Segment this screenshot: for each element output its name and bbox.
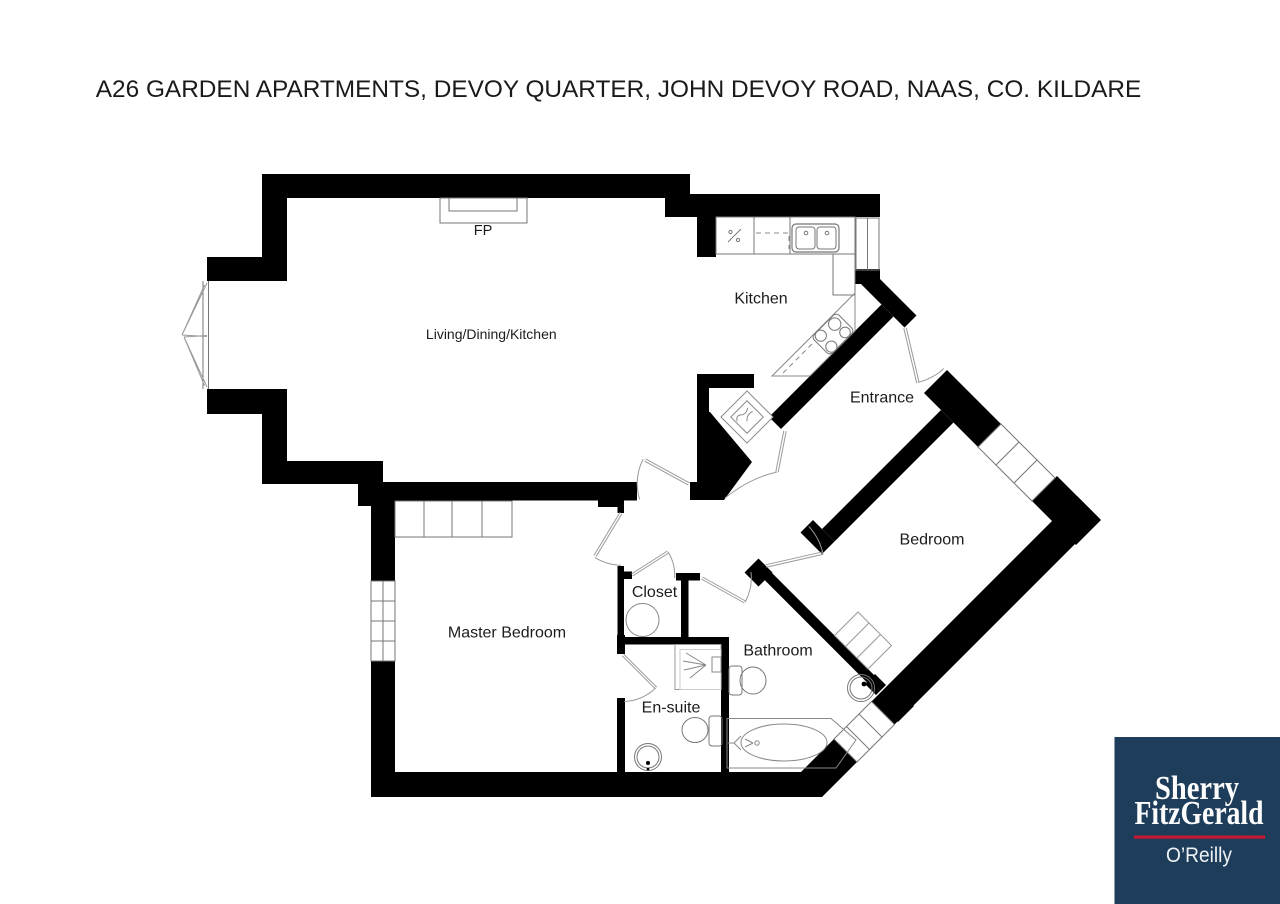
svg-text:Kitchen: Kitchen <box>734 291 787 308</box>
svg-text:Master Bedroom: Master Bedroom <box>448 624 566 641</box>
svg-text:FP: FP <box>474 223 493 239</box>
svg-text:En-suite: En-suite <box>642 700 701 717</box>
svg-text:Living/Dining/Kitchen: Living/Dining/Kitchen <box>426 326 557 342</box>
svg-text:Bedroom: Bedroom <box>900 532 965 549</box>
svg-text:O’Reilly: O’Reilly <box>1166 844 1232 867</box>
svg-text:Bathroom: Bathroom <box>743 643 812 660</box>
svg-text:Closet: Closet <box>632 584 678 601</box>
svg-text:FitzGerald: FitzGerald <box>1135 795 1264 832</box>
svg-text:Entrance: Entrance <box>850 390 914 407</box>
